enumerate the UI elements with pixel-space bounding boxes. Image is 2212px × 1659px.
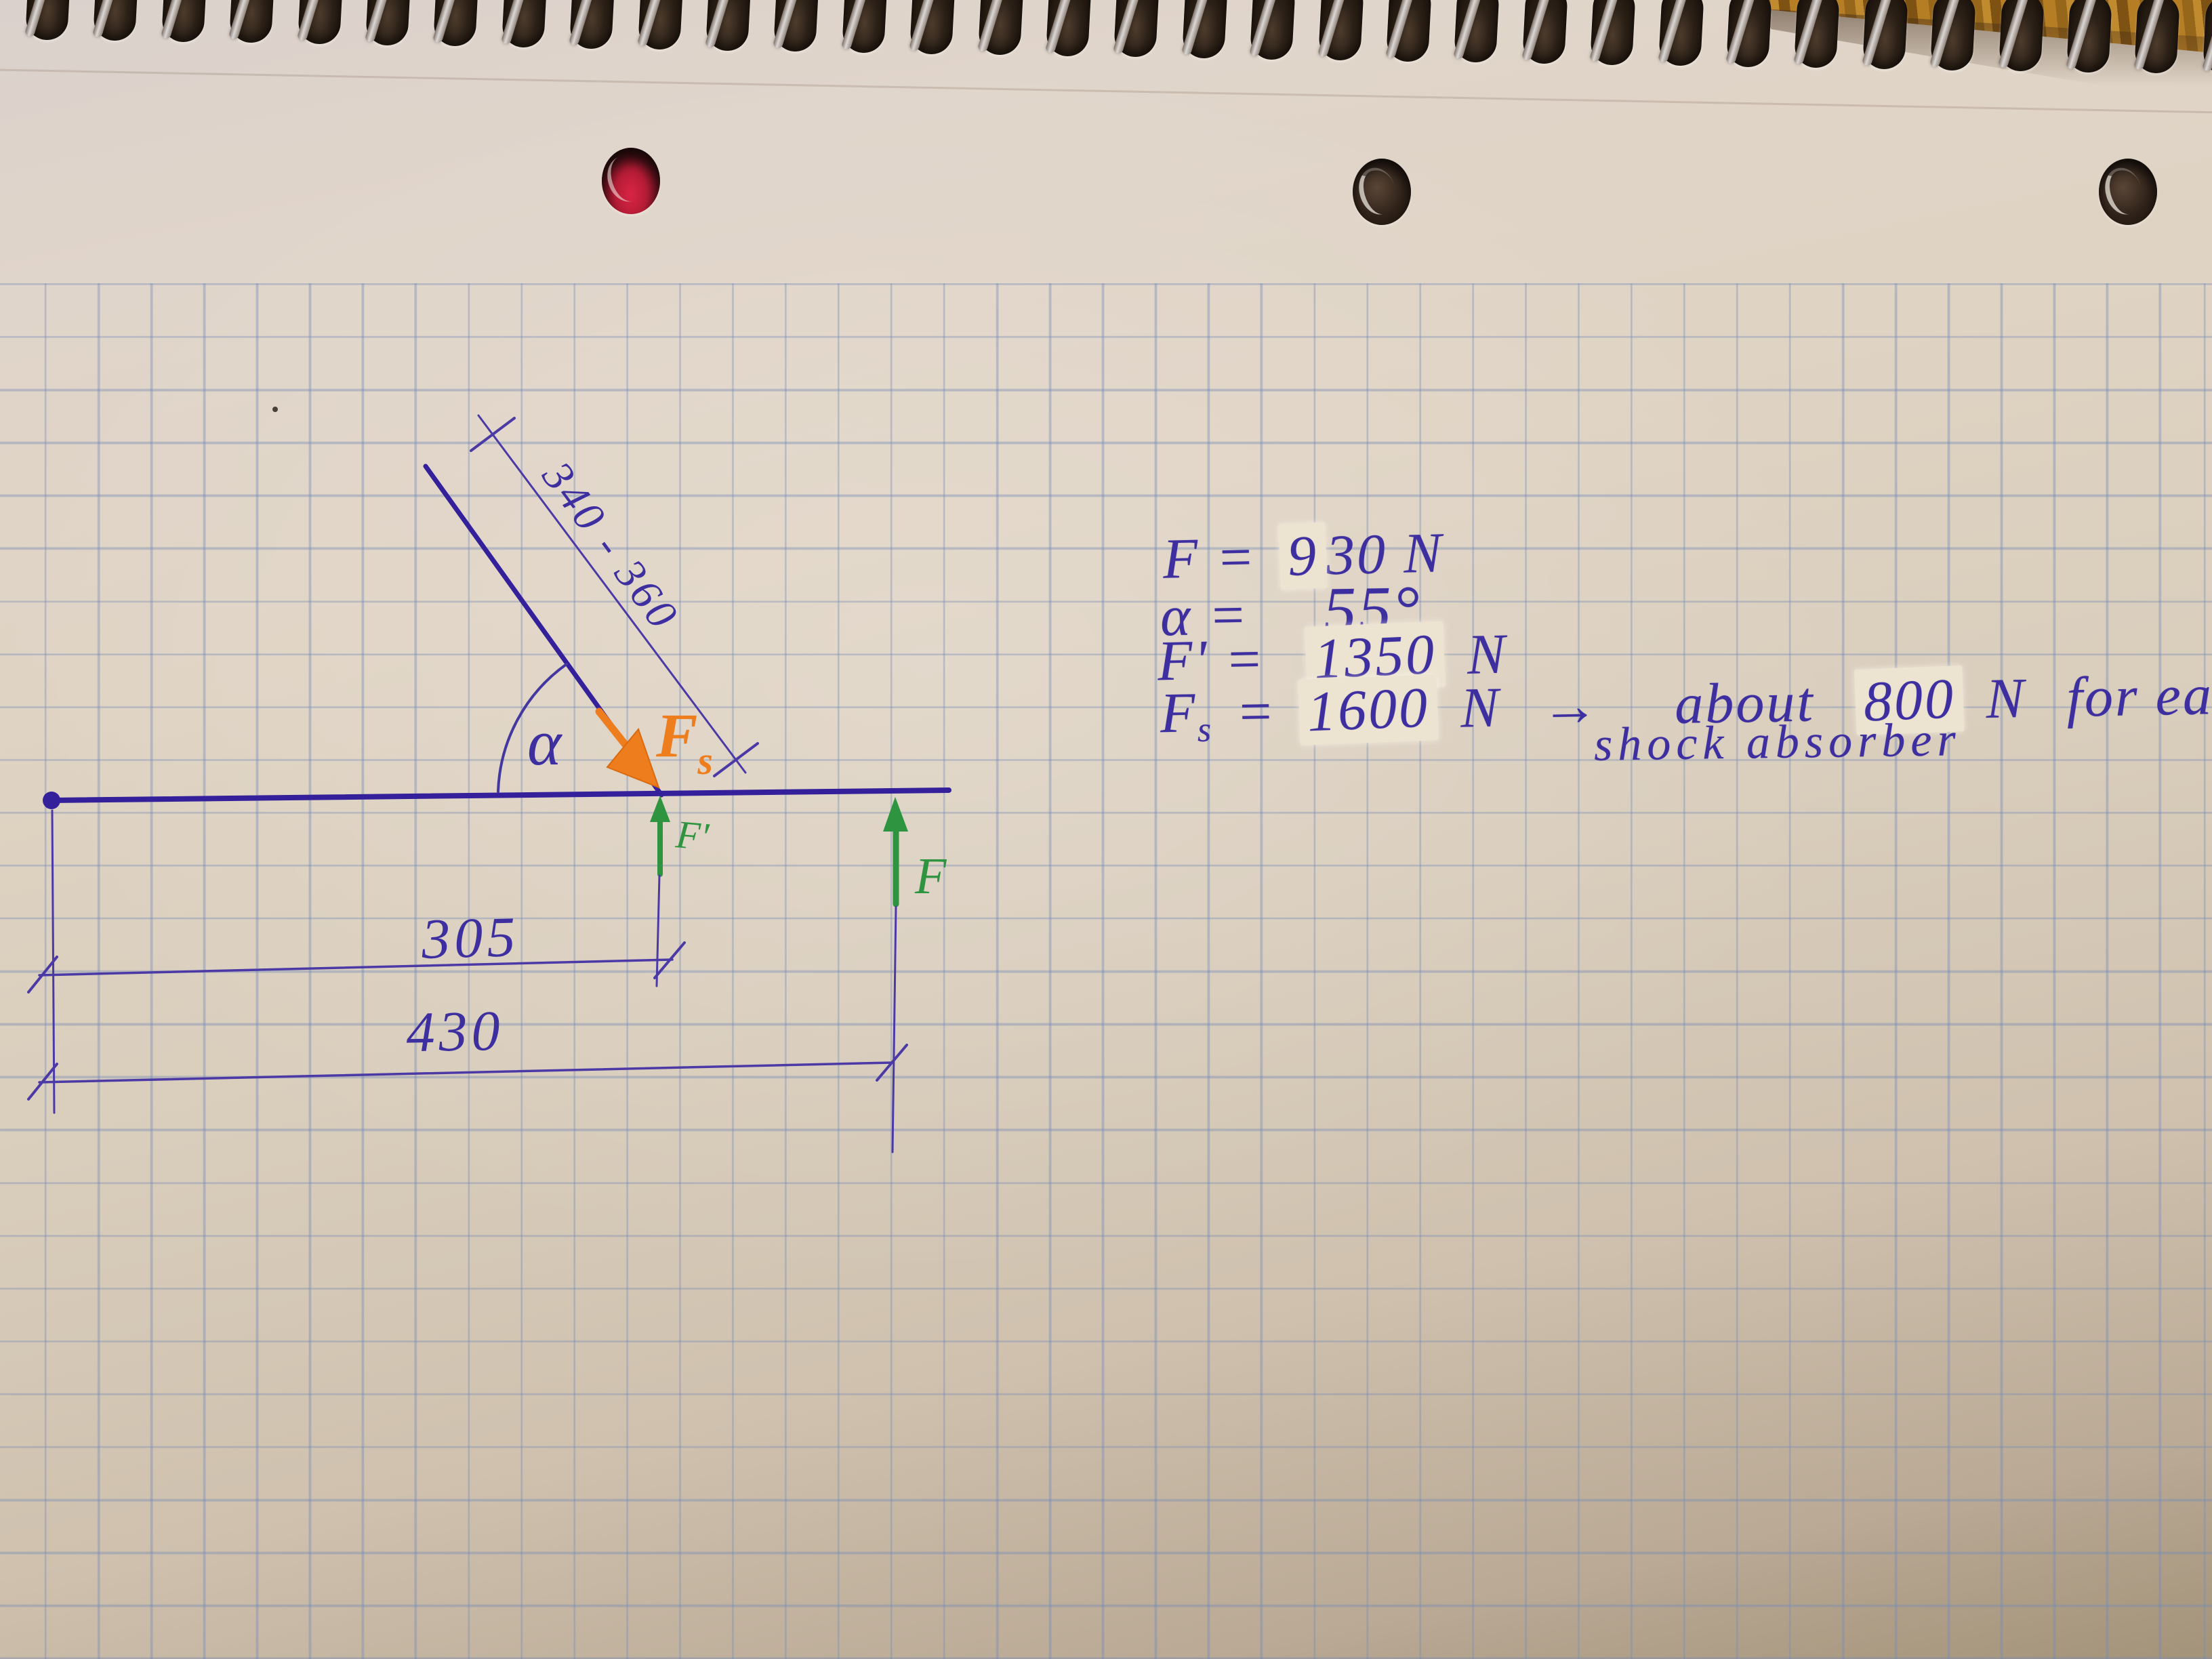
f-label: F	[914, 848, 947, 905]
note-fs-unit: N	[1460, 676, 1501, 740]
correction-patch: 1600	[1298, 674, 1439, 745]
dimension-tick	[714, 743, 758, 776]
strut-length-label: 340 - 360	[533, 452, 689, 639]
note-about-unit: N	[1986, 667, 2027, 731]
dimension-305-label: 305	[420, 905, 520, 971]
notebook-photo: 340 - 360 α Fs F' F 305	[0, 0, 2212, 1659]
alpha-symbol: α	[527, 706, 562, 779]
paper-speck	[272, 407, 278, 412]
extension-line-f	[893, 907, 896, 1152]
note-fs-patched: 1600	[1307, 676, 1431, 744]
extension-line-fprime	[657, 876, 659, 986]
note-fs-lhs: F	[1160, 681, 1197, 745]
fs-force-arrowhead-icon	[607, 729, 659, 787]
fs-label-sub: s	[697, 739, 713, 783]
note-for-each: for each	[2066, 663, 2212, 729]
fprime-arrowhead-icon	[650, 796, 670, 822]
dimension-tick	[471, 418, 514, 451]
dimension-line-305	[39, 960, 672, 975]
fprime-label: F'	[674, 812, 712, 859]
force-diagram: 340 - 360 α Fs F' F 305	[0, 0, 2212, 1659]
note-shock-absorber: shock absorber	[1593, 713, 1961, 773]
arrow-right-icon: →	[1540, 674, 1601, 739]
note-fs-sub: s	[1197, 711, 1213, 750]
pivot-dot	[43, 792, 60, 809]
beam-line	[52, 790, 949, 800]
dimension-line-430	[39, 1063, 892, 1082]
dimension-430-label: 430	[406, 1000, 505, 1064]
note-fs-eq: =	[1235, 680, 1277, 743]
fs-label: Fs	[655, 701, 713, 783]
f-arrowhead-icon	[883, 797, 908, 832]
fs-label-main: F	[655, 701, 697, 770]
